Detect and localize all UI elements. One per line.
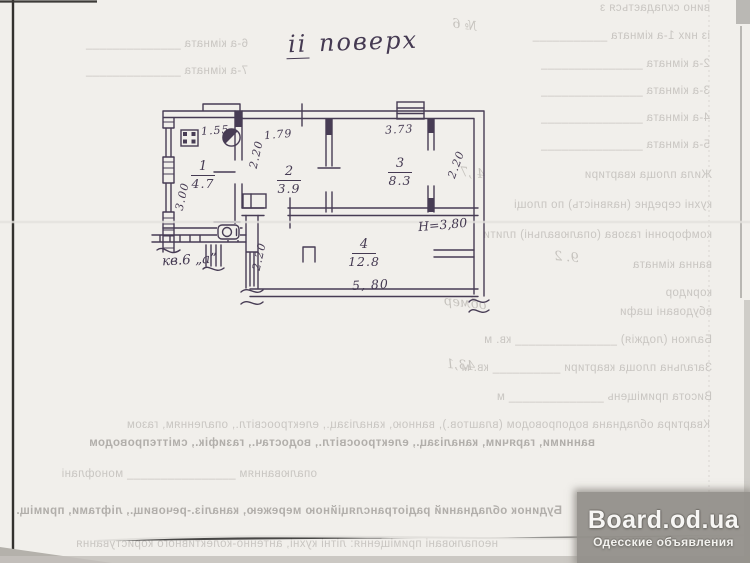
apartment-label: кв.6 „а” [162, 251, 218, 270]
scanned-floor-plan-page: вино складається зіз них 1-а кімната ___… [0, 0, 750, 563]
dim-3-00: 3.00 [173, 181, 192, 212]
dim-3-73: 3.73 [385, 122, 414, 136]
room-label-3: 3 8.3 [381, 152, 419, 188]
dim-1-79: 1.79 [263, 127, 293, 142]
dim-2-20-strip: 2.20 [445, 149, 467, 180]
plan-labels: ii поверх 1 4.7 2 3.9 3 8.3 4 12.8 1.55 … [0, 0, 750, 563]
floor-word: поверх [319, 26, 419, 57]
dim-5-80: 5, 80 [352, 276, 390, 293]
watermark: Board.od.ua Одесские объявления [577, 492, 750, 563]
height-label: Н=3,80 [417, 215, 467, 234]
room-label-4: 4 12.8 [342, 233, 386, 269]
watermark-title: Board.od.ua [588, 507, 739, 533]
room-label-2: 2 3.9 [270, 160, 308, 196]
page-title: ii поверх [286, 26, 419, 59]
watermark-subtitle: Одесские объявления [593, 535, 734, 549]
floor-roman-numeral: ii [286, 29, 310, 59]
dim-2-20-room4: 2.20 [250, 241, 269, 272]
dim-1-55: 1.55 [201, 123, 230, 138]
dim-2-20-room2: 2.20 [247, 139, 266, 170]
